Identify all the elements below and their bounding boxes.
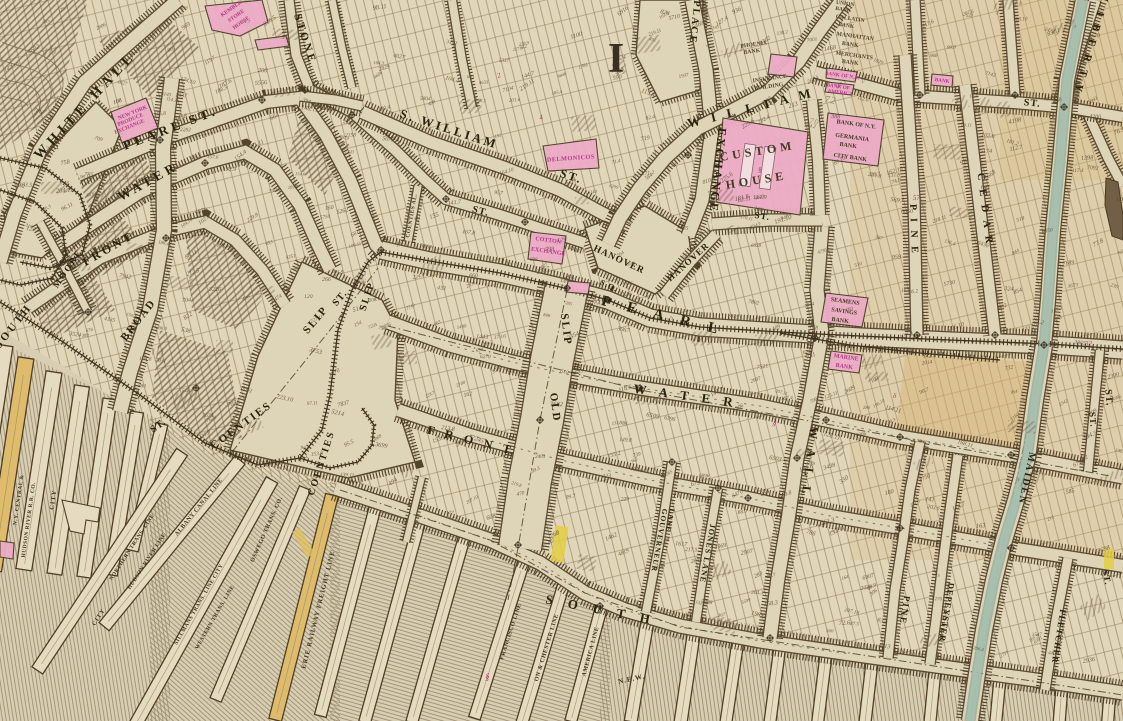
- svg-text:70: 70: [809, 116, 820, 127]
- svg-text:6: 6: [698, 230, 703, 240]
- svg-text:§: §: [485, 672, 490, 682]
- svg-text:P I N E: P I N E: [907, 204, 920, 256]
- svg-text:ST.: ST.: [1087, 412, 1098, 428]
- svg-text:I: I: [608, 36, 624, 82]
- svg-text:ST.: ST.: [1023, 97, 1041, 110]
- svg-text:57: 57: [913, 194, 921, 202]
- svg-text:ST.: ST.: [1102, 389, 1114, 407]
- svg-text:72: 72: [824, 94, 838, 107]
- svg-text:32: 32: [1084, 340, 1093, 348]
